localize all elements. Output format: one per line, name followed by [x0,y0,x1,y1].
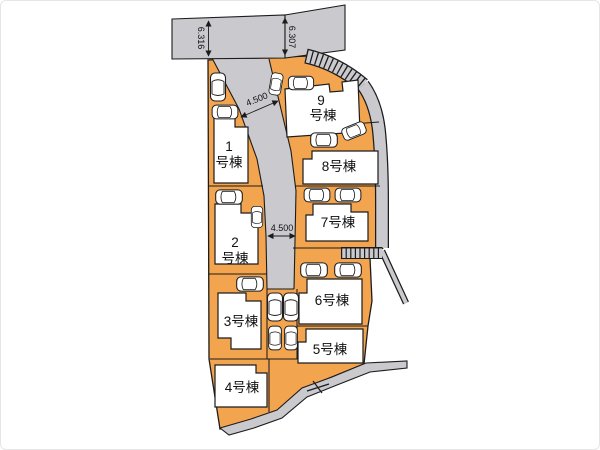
dimension-label-top-left: 6.316 [196,27,206,50]
car-icon [301,263,328,277]
lot-label-7: 7号棟 [321,215,356,230]
car-icon [269,326,282,350]
car-icon [304,188,330,202]
site-plan-svg: 1 号棟 2 号棟 3号棟 4号棟 5号棟 6号棟 7号棟 8号棟 9 号棟 6… [1,1,600,450]
car-icon [211,73,226,101]
car-icon [268,293,283,321]
lot-label-4: 4号棟 [225,380,260,395]
lot-label-2-suffix: 号棟 [222,251,249,266]
car-icon [237,277,264,291]
lot-label-3: 3号棟 [224,314,259,329]
lot-label-9-suffix: 号棟 [310,108,337,123]
dimension-label-top-right: 6.307 [287,26,297,49]
lot-label-1-suffix: 号棟 [216,155,243,170]
lot-label-2-number: 2 [231,235,239,250]
lot-label-8: 8号棟 [322,159,357,174]
lot-label-5: 5号棟 [313,342,348,357]
dimension-label-center-lower: 4.500 [271,223,294,233]
car-icon [335,263,362,277]
car-icon [311,133,338,147]
lot-label-6: 6号棟 [315,293,350,308]
lot-label-1-number: 1 [225,139,233,154]
car-icon [212,105,238,119]
top-road-left-section [172,15,285,59]
site-plan-image: 1 号棟 2 号棟 3号棟 4号棟 5号棟 6号棟 7号棟 8号棟 9 号棟 6… [0,0,600,450]
lot-label-9-number: 9 [317,93,325,108]
car-icon [285,326,298,350]
car-icon [335,188,361,202]
car-icon [251,206,262,227]
car-icon [284,293,299,321]
car-icon [216,190,243,204]
car-icon [288,76,313,90]
